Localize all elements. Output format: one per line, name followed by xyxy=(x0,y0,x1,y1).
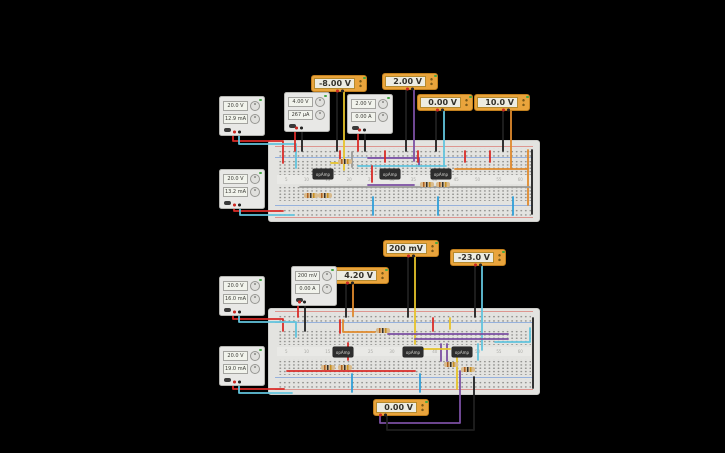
multimeter[interactable]: 0.00 V xyxy=(373,399,429,416)
psu-power-switch[interactable] xyxy=(224,378,231,382)
power-supply[interactable]: 20.0 V 16.0 mA xyxy=(219,276,265,316)
psu-voltage-value: 20.0 V xyxy=(227,283,243,289)
psu-power-switch[interactable] xyxy=(224,128,231,132)
psu-current-value: 16.0 mA xyxy=(225,296,246,302)
multimeter-mode-dial[interactable] xyxy=(379,270,386,281)
psu-voltage-knob[interactable] xyxy=(250,101,260,111)
psu-voltage-display: 2.00 V xyxy=(351,99,376,109)
psu-current-value: 267 µA xyxy=(292,112,310,118)
psu-voltage-value: 4.00 V xyxy=(292,99,308,105)
multimeter-reading: -23.0 V xyxy=(458,253,490,262)
psu-voltage-knob[interactable] xyxy=(322,271,332,281)
psu-voltage-value: 200 mV xyxy=(298,273,317,279)
psu-voltage-display: 200 mV xyxy=(295,271,320,281)
power-supply[interactable]: 20.0 V 19.0 mA xyxy=(219,346,265,386)
probe-terminals[interactable] xyxy=(378,413,388,417)
multimeter[interactable]: -8.00 V xyxy=(311,75,367,92)
multimeter-mode-dial[interactable] xyxy=(463,97,470,108)
psu-current-knob[interactable] xyxy=(250,364,260,374)
psu-current-display: 19.0 mA xyxy=(223,364,248,374)
resistor[interactable] xyxy=(461,367,475,372)
resistor[interactable] xyxy=(338,365,352,370)
psu-current-display: 12.9 mA xyxy=(223,114,248,124)
psu-voltage-value: 2.00 V xyxy=(355,101,371,107)
chip-label: opAmp xyxy=(455,350,469,355)
psu-current-value: 12.9 mA xyxy=(225,116,246,122)
psu-voltage-display: 4.00 V xyxy=(288,97,313,107)
multimeter-mode-dial[interactable] xyxy=(419,402,426,413)
chip-label: opAmp xyxy=(434,172,448,177)
resistor[interactable] xyxy=(304,193,318,198)
psu-voltage-knob[interactable] xyxy=(378,99,388,109)
psu-power-switch[interactable] xyxy=(224,308,231,312)
chip-label: opAmp xyxy=(383,172,397,177)
opamp-chip[interactable]: opAmp xyxy=(452,347,472,357)
psu-current-display: 0.00 A xyxy=(351,112,376,122)
probe-terminals[interactable] xyxy=(335,89,345,93)
psu-voltage-value: 20.0 V xyxy=(227,176,243,182)
psu-current-knob[interactable] xyxy=(378,112,388,122)
multimeter-reading: 0.00 V xyxy=(384,403,413,412)
psu-voltage-value: 20.0 V xyxy=(227,103,243,109)
opamp-chip[interactable]: opAmp xyxy=(333,347,353,357)
multimeter-reading: 200 mV xyxy=(389,244,423,253)
multimeter-reading: 2.00 V xyxy=(393,77,422,86)
chip-label: opAmp xyxy=(316,172,330,177)
power-supply[interactable]: 2.00 V 0.00 A xyxy=(347,94,393,134)
multimeter-reading: 10.0 V xyxy=(485,98,514,107)
multimeter[interactable]: 10.0 V xyxy=(474,94,530,111)
psu-voltage-value: 20.0 V xyxy=(227,353,243,359)
chip-label: opAmp xyxy=(406,350,420,355)
psu-output-terminals[interactable] xyxy=(297,300,307,304)
psu-current-value: 0.00 A xyxy=(299,286,315,292)
probe-terminals[interactable] xyxy=(473,263,483,267)
multimeter-display: 0.00 V xyxy=(376,402,417,413)
wire[interactable] xyxy=(239,314,296,337)
multimeter-mode-dial[interactable] xyxy=(357,78,364,89)
power-supply[interactable]: 20.0 V 13.2 mA xyxy=(219,169,265,209)
wire[interactable] xyxy=(239,135,296,168)
resistor[interactable] xyxy=(444,362,458,367)
multimeter-mode-dial[interactable] xyxy=(428,76,435,87)
psu-voltage-knob[interactable] xyxy=(250,174,260,184)
power-supply[interactable]: 200 mV 0.00 A xyxy=(291,266,337,306)
multimeter-mode-dial[interactable] xyxy=(429,243,436,254)
psu-voltage-knob[interactable] xyxy=(250,281,260,291)
chip-label: opAmp xyxy=(336,350,350,355)
psu-current-display: 267 µA xyxy=(288,110,313,120)
multimeter-display: 2.00 V xyxy=(385,76,426,87)
wire-layer xyxy=(0,0,725,453)
psu-current-value: 19.0 mA xyxy=(225,366,246,372)
resistor[interactable] xyxy=(420,182,434,187)
resistor[interactable] xyxy=(318,193,332,198)
psu-current-value: 13.2 mA xyxy=(225,189,246,195)
circuit-workspace: 51015202530354045505560 5101520253035404… xyxy=(0,0,725,453)
multimeter[interactable]: 0.00 V xyxy=(417,94,473,111)
multimeter-display: 0.00 V xyxy=(420,97,461,108)
power-supply[interactable]: 4.00 V 267 µA xyxy=(284,92,330,132)
power-supply[interactable]: 20.0 V 12.9 mA xyxy=(219,96,265,136)
psu-output-terminals[interactable] xyxy=(232,130,242,134)
resistor[interactable] xyxy=(376,328,390,333)
multimeter-display: -23.0 V xyxy=(453,252,494,263)
multimeter[interactable]: 2.00 V xyxy=(382,73,438,90)
psu-current-display: 13.2 mA xyxy=(223,187,248,197)
probe-terminals[interactable] xyxy=(501,108,511,112)
psu-output-terminals[interactable] xyxy=(232,310,242,314)
psu-voltage-display: 20.0 V xyxy=(223,281,248,291)
multimeter-reading: -8.00 V xyxy=(319,79,351,88)
multimeter-reading: 0.00 V xyxy=(428,98,457,107)
psu-current-display: 0.00 A xyxy=(295,284,320,294)
probe-terminals[interactable] xyxy=(435,108,445,112)
psu-power-switch[interactable] xyxy=(224,201,231,205)
wire[interactable] xyxy=(368,158,419,166)
psu-current-knob[interactable] xyxy=(250,187,260,197)
opamp-chip[interactable]: opAmp xyxy=(403,347,423,357)
psu-current-knob[interactable] xyxy=(315,110,325,120)
multimeter-display: -8.00 V xyxy=(314,78,355,89)
psu-current-display: 16.0 mA xyxy=(223,294,248,304)
multimeter-mode-dial[interactable] xyxy=(496,252,503,263)
opamp-chip[interactable]: opAmp xyxy=(380,169,400,179)
multimeter-display: 200 mV xyxy=(386,243,427,254)
multimeter-display: 10.0 V xyxy=(477,97,518,108)
psu-output-terminals[interactable] xyxy=(294,126,304,130)
resistor[interactable] xyxy=(338,159,352,164)
psu-output-terminals[interactable] xyxy=(232,203,242,207)
psu-output-terminals[interactable] xyxy=(232,380,242,384)
psu-voltage-knob[interactable] xyxy=(315,97,325,107)
psu-current-knob[interactable] xyxy=(322,284,332,294)
opamp-chip[interactable]: opAmp xyxy=(313,169,333,179)
multimeter[interactable]: -23.0 V xyxy=(450,249,506,266)
psu-current-knob[interactable] xyxy=(250,114,260,124)
psu-voltage-display: 20.0 V xyxy=(223,351,248,361)
opamp-chip[interactable]: opAmp xyxy=(431,169,451,179)
multimeter-display: 4.20 V xyxy=(336,270,377,281)
probe-terminals[interactable] xyxy=(406,254,416,258)
wire[interactable] xyxy=(343,320,375,332)
psu-voltage-knob[interactable] xyxy=(250,351,260,361)
resistor[interactable] xyxy=(436,182,450,187)
psu-current-value: 0.00 A xyxy=(355,114,371,120)
psu-voltage-display: 20.0 V xyxy=(223,101,248,111)
multimeter-reading: 4.20 V xyxy=(344,271,373,280)
probe-terminals[interactable] xyxy=(345,281,355,285)
psu-current-knob[interactable] xyxy=(250,294,260,304)
wire[interactable] xyxy=(233,133,283,163)
probe-terminals[interactable] xyxy=(405,87,415,91)
resistor[interactable] xyxy=(321,365,335,370)
multimeter[interactable]: 4.20 V xyxy=(333,267,389,284)
multimeter[interactable]: 200 mV xyxy=(383,240,439,257)
psu-voltage-display: 20.0 V xyxy=(223,174,248,184)
psu-output-terminals[interactable] xyxy=(357,128,367,132)
multimeter-mode-dial[interactable] xyxy=(520,97,527,108)
